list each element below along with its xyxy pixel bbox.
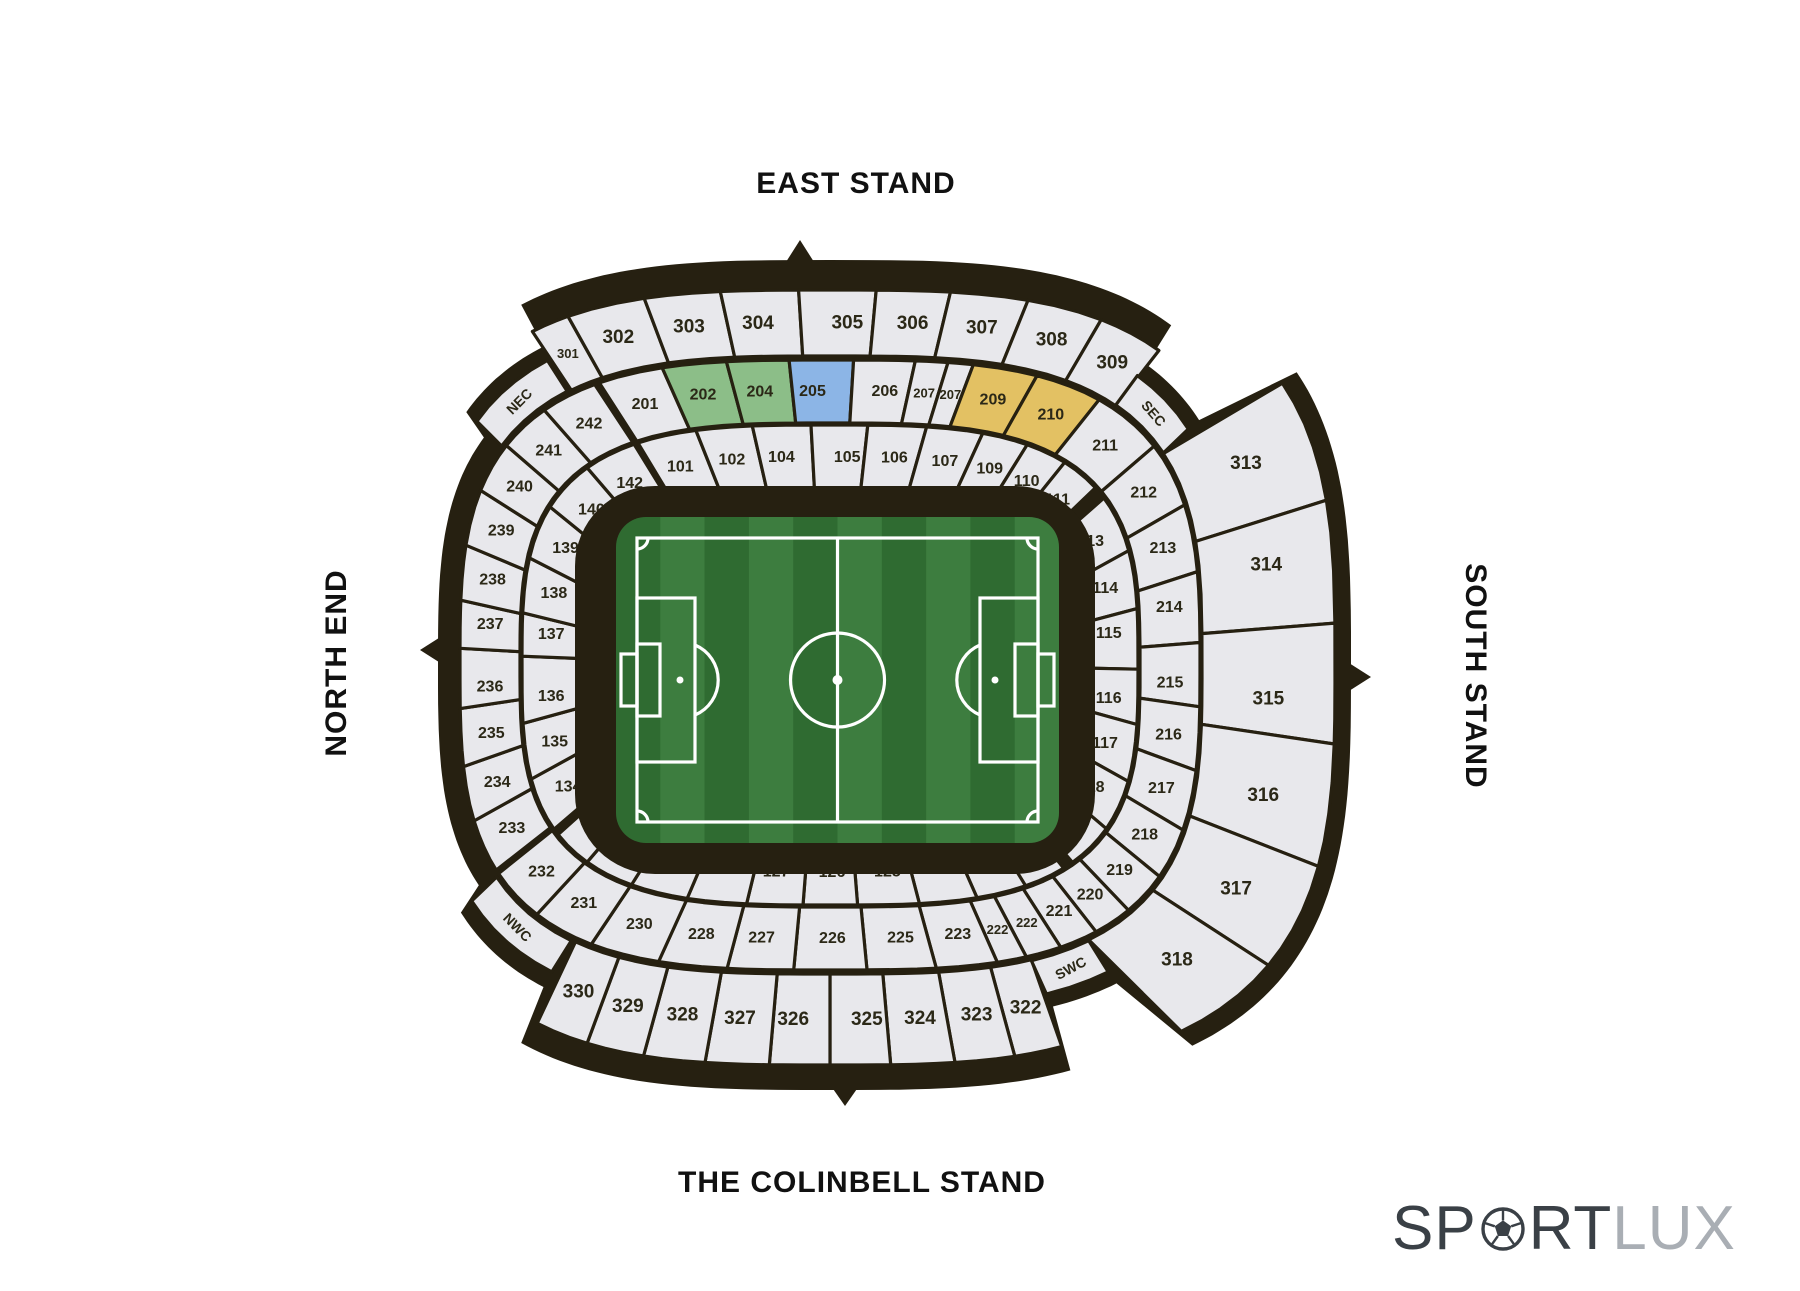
section-number: 308 <box>1036 330 1068 351</box>
section-number: 306 <box>897 313 929 334</box>
section-305[interactable]: 305 <box>799 290 877 356</box>
section-number: 117 <box>1092 735 1118 752</box>
section-number: 222 <box>987 922 1009 937</box>
section-number: 116 <box>1096 690 1122 707</box>
section-205[interactable]: 205 <box>789 360 854 423</box>
section-number: 212 <box>1130 485 1157 502</box>
section-number: 307 <box>966 317 998 338</box>
section-304[interactable]: 304 <box>720 290 802 357</box>
section-number: 106 <box>881 450 908 467</box>
section-number: 225 <box>887 929 914 946</box>
section-number: 109 <box>976 461 1003 478</box>
section-number: 104 <box>768 449 795 466</box>
section-number: 315 <box>1253 688 1285 709</box>
section-number: 324 <box>904 1008 936 1029</box>
section-226[interactable]: 226 <box>794 907 867 970</box>
section-number: 213 <box>1150 540 1177 557</box>
section-number: 217 <box>1148 780 1175 797</box>
section-number: 114 <box>1092 580 1118 597</box>
section-number: 234 <box>484 774 511 791</box>
section-number: 138 <box>541 585 568 602</box>
section-number: 304 <box>742 313 774 334</box>
section-number: 205 <box>799 383 826 400</box>
section-number: 215 <box>1157 675 1184 692</box>
section-number: 202 <box>690 387 717 404</box>
section-326[interactable]: 326 <box>769 974 830 1065</box>
section-105[interactable]: 105 <box>811 425 868 490</box>
section-number: 135 <box>541 734 568 751</box>
section-number: 220 <box>1077 887 1104 904</box>
section-number: 314 <box>1250 554 1282 575</box>
football-icon <box>1479 1205 1527 1253</box>
section-number: 226 <box>819 930 846 947</box>
section-number: 326 <box>777 1009 809 1030</box>
section-number: 318 <box>1161 950 1193 971</box>
section-number: 221 <box>1046 903 1073 920</box>
section-number: 214 <box>1156 599 1183 616</box>
section-number: 232 <box>528 863 555 880</box>
section-number: 231 <box>570 895 597 912</box>
section-number: 230 <box>626 916 653 933</box>
section-number: 209 <box>980 391 1007 408</box>
section-number: 303 <box>673 316 705 337</box>
section-number: 204 <box>746 384 773 401</box>
section-number: 323 <box>961 1005 993 1026</box>
section-215[interactable]: 215 <box>1140 643 1200 707</box>
section-number: 101 <box>667 458 694 475</box>
compass-notch-east <box>786 240 814 262</box>
section-number: 313 <box>1230 453 1262 474</box>
logo-text-sp: SP <box>1392 1198 1477 1260</box>
stand-label-south: SOUTH STAND <box>1458 563 1492 788</box>
section-number: 216 <box>1155 726 1182 743</box>
section-number: 222 <box>1016 915 1038 930</box>
section-number: 207 <box>940 387 962 402</box>
section-number: 201 <box>632 396 659 413</box>
section-number: 316 <box>1247 785 1279 806</box>
section-number: 211 <box>1092 437 1118 454</box>
section-number: 218 <box>1131 827 1158 844</box>
section-number: 305 <box>831 313 863 334</box>
section-number: 207 <box>913 385 935 400</box>
compass-notch-west <box>831 1086 859 1106</box>
section-number: 328 <box>667 1004 699 1025</box>
pitch <box>575 486 1095 874</box>
section-number: 233 <box>499 820 526 837</box>
section-number: 210 <box>1037 407 1064 424</box>
section-number: 242 <box>576 415 603 432</box>
section-number: 105 <box>834 449 861 466</box>
section-number: 237 <box>477 616 504 633</box>
section-number: 115 <box>1096 625 1122 642</box>
section-number: 107 <box>932 453 959 470</box>
section-number: 329 <box>612 996 644 1017</box>
section-number: 330 <box>563 982 595 1003</box>
brand-logo: SP RT LUX <box>1392 1198 1736 1260</box>
section-236[interactable]: 236 <box>460 648 520 708</box>
section-number: 325 <box>851 1009 883 1030</box>
logo-text-lux: LUX <box>1612 1198 1736 1260</box>
section-number: 240 <box>506 479 533 496</box>
section-number: 228 <box>688 926 715 943</box>
section-number: 317 <box>1220 878 1252 899</box>
section-number: 235 <box>478 725 505 742</box>
stand-label-west: THE COLINBELL STAND <box>678 1166 1046 1200</box>
section-number: 137 <box>538 626 565 643</box>
section-number: 327 <box>724 1008 756 1029</box>
section-325[interactable]: 325 <box>830 974 891 1065</box>
section-number: 322 <box>1010 997 1042 1018</box>
section-number: 302 <box>602 327 634 348</box>
section-number: 236 <box>477 678 504 695</box>
section-number: 227 <box>748 930 775 947</box>
section-number: 309 <box>1096 352 1128 373</box>
logo-text-rt: RT <box>1529 1198 1613 1260</box>
section-number: 223 <box>944 926 971 943</box>
section-number: 206 <box>871 383 898 400</box>
section-number: 239 <box>488 523 515 540</box>
stand-label-north: NORTH END <box>320 569 354 756</box>
section-number: 219 <box>1106 862 1133 879</box>
section-number: 136 <box>538 688 565 705</box>
seat-map-page: 1011021041051061071091101111131141151161… <box>0 0 1800 1291</box>
section-number: 238 <box>479 571 506 588</box>
compass-notch-north <box>420 636 442 664</box>
section-number: 301 <box>557 346 579 361</box>
section-number: 139 <box>552 540 579 557</box>
section-number: 102 <box>719 451 746 468</box>
compass-notch-south <box>1349 663 1371 691</box>
stand-label-east: EAST STAND <box>756 167 955 201</box>
section-number: 241 <box>535 443 562 460</box>
